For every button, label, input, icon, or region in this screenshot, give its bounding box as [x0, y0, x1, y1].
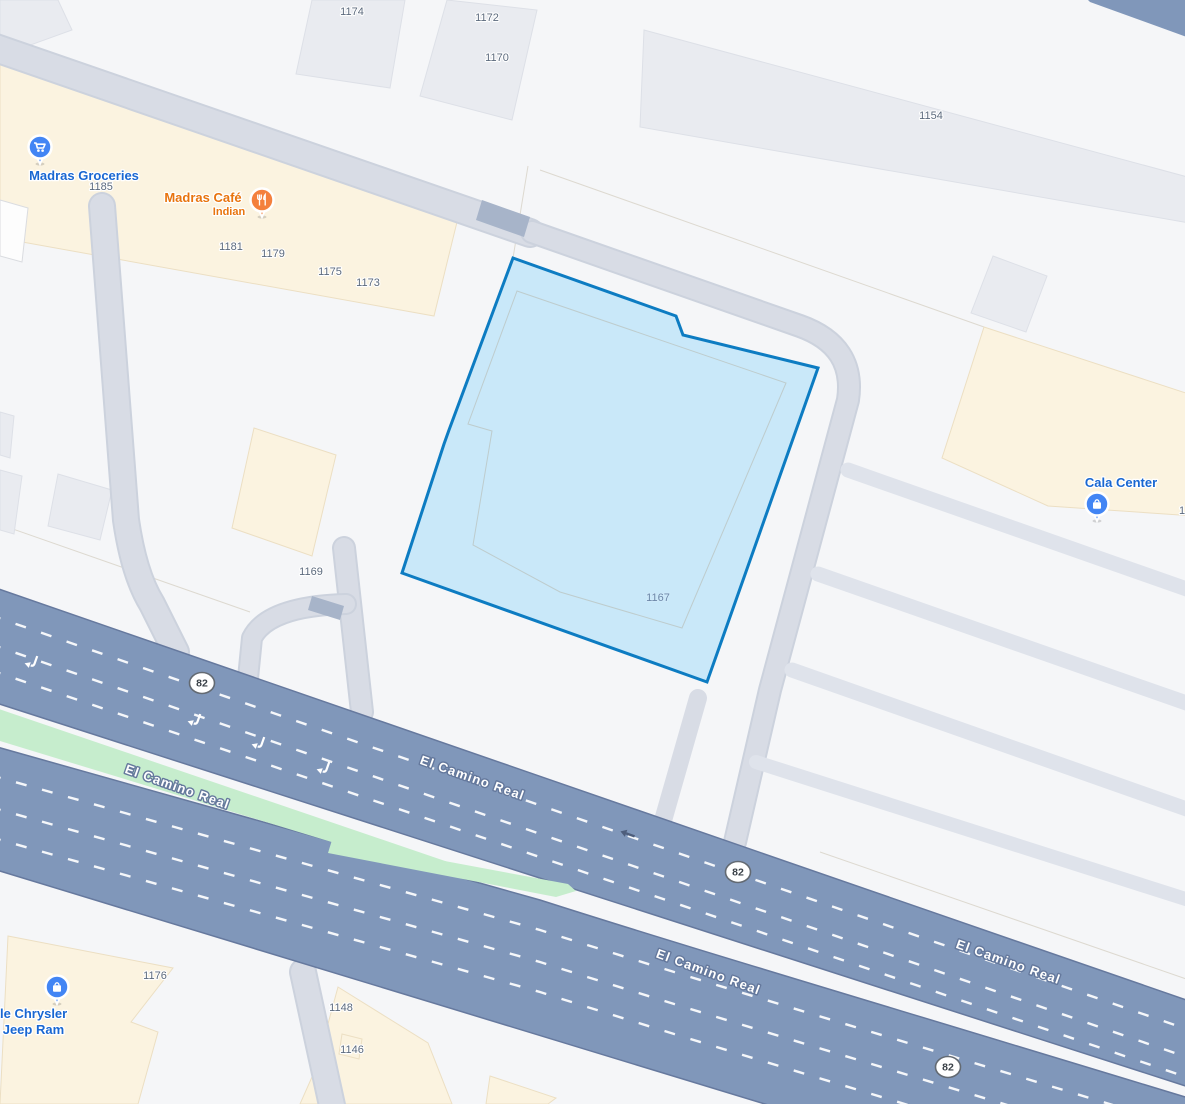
- house-number: 1173: [356, 277, 380, 289]
- dealer-label-line2[interactable]: e Jeep Ram: [0, 1022, 64, 1037]
- house-number: 1148: [329, 1002, 353, 1014]
- madras-cafe-label[interactable]: Madras Café: [164, 190, 241, 205]
- route-82-shield: 82: [190, 673, 215, 694]
- svg-text:82: 82: [196, 678, 208, 690]
- house-number: 1174: [340, 6, 364, 18]
- house-number: 1146: [340, 1044, 364, 1056]
- map-canvas[interactable]: 1167 82 82 82 El Camino Real El Camino R…: [0, 0, 1185, 1104]
- madras-cafe-sublabel: Indian: [213, 206, 246, 218]
- route-82-shield: 82: [726, 862, 751, 883]
- house-number: 1172: [475, 12, 499, 24]
- route-82-shield: 82: [936, 1057, 961, 1078]
- cala-center-label[interactable]: Cala Center: [1085, 475, 1157, 490]
- house-number-clipped: 1: [1179, 505, 1185, 517]
- svg-text:82: 82: [732, 867, 744, 879]
- house-number: 1176: [143, 970, 167, 982]
- parcel-number: 1167: [646, 592, 670, 604]
- house-number: 1154: [919, 110, 943, 122]
- house-number: 1169: [299, 566, 323, 578]
- house-number: 1175: [318, 266, 342, 278]
- svg-text:82: 82: [942, 1062, 954, 1074]
- dealer-label-line1[interactable]: ale Chrysler: [0, 1006, 67, 1021]
- madras-groceries-label[interactable]: Madras Groceries: [29, 168, 139, 183]
- house-number: 1179: [261, 248, 285, 260]
- house-number: 1181: [219, 241, 243, 253]
- house-number: 1170: [485, 52, 509, 64]
